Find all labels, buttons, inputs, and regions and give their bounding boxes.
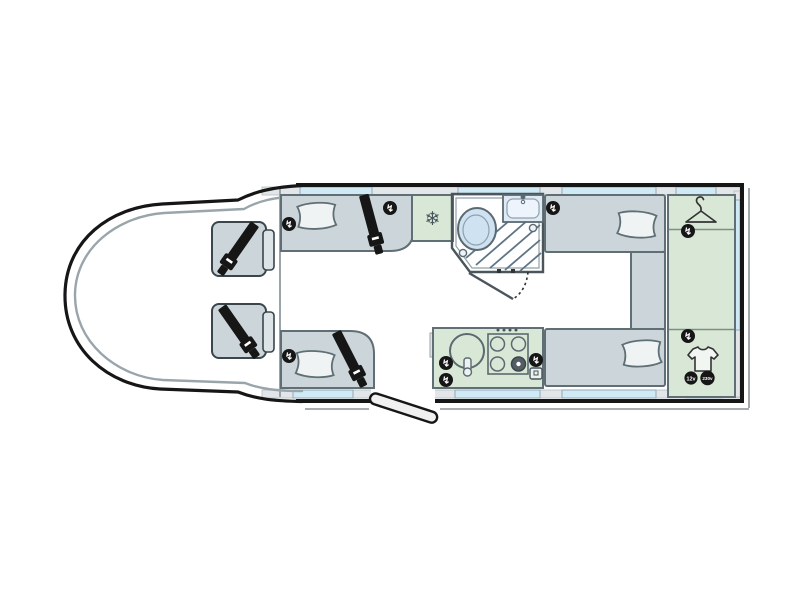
badge-230v-label: 230v — [702, 376, 713, 381]
top-wall — [296, 183, 744, 187]
socket-icon: ↯ — [681, 329, 695, 343]
socket-icon: ↯ — [681, 224, 695, 238]
badge-230v: 230v — [700, 371, 714, 385]
cab-windscreen-line — [75, 196, 302, 391]
svg-text:↯: ↯ — [285, 219, 293, 230]
bottom-wall — [296, 399, 744, 403]
seat-armrest — [263, 230, 274, 270]
door-hinge — [497, 269, 501, 273]
cab — [65, 186, 302, 402]
rear-wall — [740, 183, 744, 403]
seat-armrest — [263, 312, 274, 352]
window-rear-lounge-top — [562, 187, 656, 195]
socket-icon: ↯ — [282, 349, 296, 363]
washroom — [452, 194, 543, 299]
window-front-lounge-top — [300, 187, 372, 195]
window-rear-lounge-bottom — [562, 390, 656, 398]
rear-seat-back — [631, 252, 665, 329]
cushion — [297, 202, 336, 230]
socket-icon: ↯ — [282, 217, 296, 231]
cushion — [617, 210, 657, 239]
svg-text:↯: ↯ — [684, 331, 692, 342]
socket-icon: ↯ — [529, 353, 543, 367]
fridge-snowflake-icon: ❄ — [425, 209, 441, 230]
svg-text:↯: ↯ — [285, 351, 293, 362]
cab-seat-passenger — [212, 303, 274, 362]
svg-text:↯: ↯ — [684, 226, 692, 237]
motorhome-floorplan: ❄ — [0, 0, 800, 600]
tap-icon — [521, 195, 526, 200]
svg-text:↯: ↯ — [386, 203, 394, 214]
toilet — [458, 208, 496, 250]
cab-seat-driver — [212, 220, 274, 279]
svg-text:↯: ↯ — [549, 203, 557, 214]
svg-text:↯: ↯ — [442, 375, 450, 386]
rear-lounge — [545, 195, 665, 386]
svg-text:↯: ↯ — [442, 358, 450, 369]
door-swing-arc — [513, 272, 528, 299]
socket-icon: ↯ — [439, 373, 453, 387]
washroom-door — [469, 273, 513, 299]
cushion — [622, 339, 662, 368]
badge-12v-label: 12v — [687, 376, 696, 382]
tap-icon — [464, 368, 472, 376]
cab-outer-shell — [65, 186, 302, 402]
badge-12v: 12v — [684, 371, 697, 384]
wardrobe: 12v 230v — [668, 195, 735, 397]
door-hinge — [511, 269, 515, 273]
window-kitchen-bottom — [455, 390, 540, 398]
window-wardrobe-top — [676, 187, 716, 195]
shower-drain-icon — [529, 224, 536, 231]
cushion — [296, 350, 335, 378]
shower-drain-icon — [459, 249, 466, 256]
washbasin — [503, 195, 543, 222]
hotplate-icon — [516, 362, 520, 366]
socket-icon: ↯ — [546, 201, 560, 215]
socket-icon: ↯ — [439, 356, 453, 370]
svg-text:↯: ↯ — [532, 355, 540, 366]
socket-icon: ↯ — [383, 201, 397, 215]
switch-panel-icon — [530, 368, 542, 379]
fridge-cabinet: ❄ — [412, 195, 453, 241]
floorplan-canvas: ❄ — [0, 0, 800, 600]
front-lounge — [281, 193, 414, 390]
